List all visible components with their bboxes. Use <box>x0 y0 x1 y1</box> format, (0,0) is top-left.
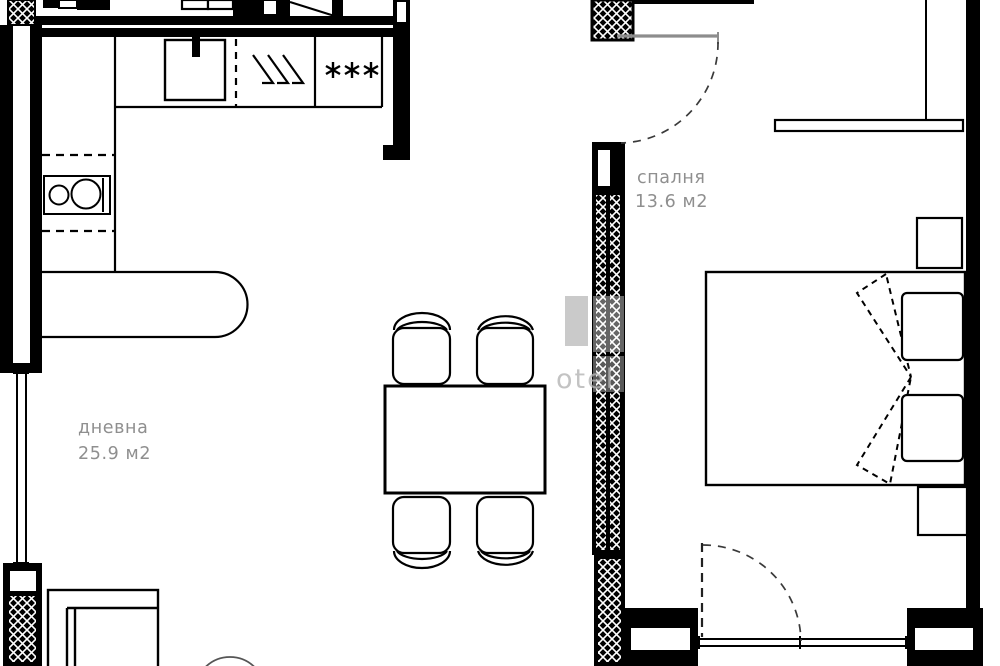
bedroom-furniture <box>706 0 967 535</box>
left-interior-wall-leaf <box>30 25 42 363</box>
kitchen-right-wall <box>393 0 410 148</box>
floor-plan-drawing: otel дневна 25.9 м2 спалня 13.6 м2 <box>0 0 1000 666</box>
bedroom-top-wall-fragment <box>628 0 754 4</box>
top-edge-wall-fragment <box>43 0 59 8</box>
top-edge-opening <box>263 0 277 15</box>
sofa <box>48 590 158 666</box>
pier-hatch <box>9 596 36 662</box>
watermark-block <box>593 296 624 352</box>
bedroom-pier-top <box>592 0 633 40</box>
bedroom-doorpost-slot <box>598 150 610 186</box>
kitchen-top-wall <box>35 28 410 37</box>
top-edge-wall-fragment <box>77 0 110 10</box>
bedroom-window <box>698 636 907 649</box>
living-room-name: дневна <box>78 418 148 438</box>
kitchen-wall-foot <box>383 145 410 160</box>
partition-wall-living-bedroom <box>592 190 625 666</box>
dining-table <box>385 386 545 493</box>
bedroom-name: спалня <box>637 168 706 188</box>
pier-bottom-left <box>3 563 42 666</box>
pier-notch <box>10 571 36 591</box>
right-exterior-wall <box>966 0 980 666</box>
top-edge-opening <box>59 0 77 8</box>
top-wall-upper-bar <box>35 16 400 25</box>
dining-chair <box>477 497 533 565</box>
dining-chair <box>477 316 533 384</box>
door-swing-arc <box>703 545 801 641</box>
watermark-block <box>565 296 588 346</box>
door-swing-arc <box>621 42 718 143</box>
wardrobe-shelf <box>775 120 963 131</box>
dining-chair <box>393 497 450 568</box>
top-edge-wall-fragment <box>233 0 263 16</box>
left-wall-cap <box>0 363 42 373</box>
living-room-area: 25.9 м2 <box>78 444 151 464</box>
top-edge-wall-fragment <box>277 0 290 18</box>
nightstand <box>918 487 967 535</box>
bedroom-area: 13.6 м2 <box>635 192 708 212</box>
bedroom-window-left-pier-notch <box>631 628 690 650</box>
bedroom-entry-door <box>617 32 718 143</box>
freezer-stars-icon <box>326 62 378 78</box>
watermark: otel <box>556 296 624 395</box>
top-edge-fixture-box <box>182 0 208 9</box>
living-room-furniture <box>48 313 545 666</box>
dishwasher-icon <box>253 55 303 83</box>
top-edge-fixture-box <box>208 0 233 9</box>
living-room-window <box>13 373 29 563</box>
pillow <box>902 395 963 461</box>
partition-wall-hatch-lower <box>598 559 621 662</box>
round-rug <box>195 657 265 666</box>
kitchen <box>42 30 382 337</box>
dining-chair <box>393 313 450 384</box>
corner-pier-top-left <box>8 0 35 25</box>
cooktop <box>44 176 110 214</box>
balcony-door <box>702 543 801 641</box>
floor-plan: otel дневна 25.9 м2 спалня 13.6 м2 <box>0 0 1000 666</box>
pillow <box>902 293 963 360</box>
kitchen-right-wall-slot <box>397 2 406 22</box>
bar-peninsula <box>42 272 248 337</box>
nightstand <box>917 218 962 268</box>
left-exterior-wall <box>0 25 13 373</box>
watermark-text: otel <box>556 364 615 395</box>
bedroom-window-right-pier-notch <box>915 628 973 650</box>
